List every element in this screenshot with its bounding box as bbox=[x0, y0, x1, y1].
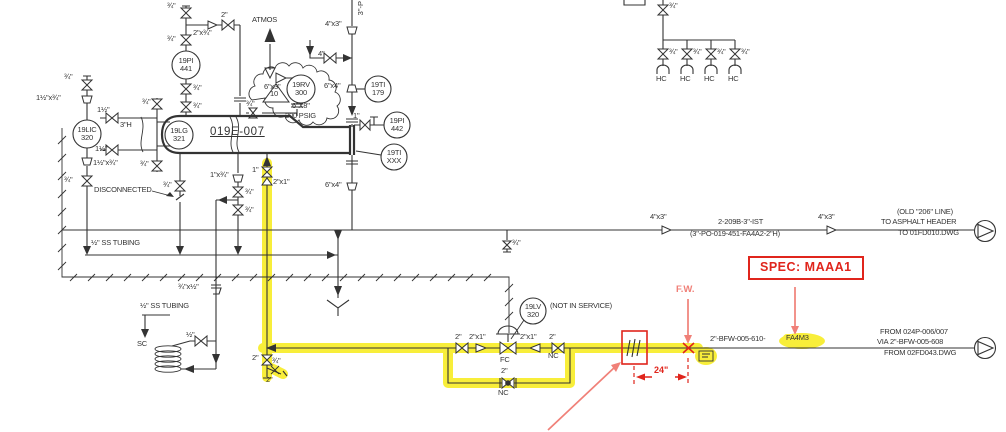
size-1-pi442: 1" bbox=[353, 112, 359, 120]
hc-4: HC bbox=[728, 75, 738, 83]
inst-19pi-442: 19PI 442 bbox=[390, 117, 405, 133]
size-2x1-lv-dn: 2"x1" bbox=[520, 333, 536, 341]
size-3-4-bridle-bot: ¾" bbox=[140, 160, 149, 168]
size-1half-top: 1½" bbox=[97, 106, 110, 114]
reducer-6x4-bot bbox=[347, 183, 357, 190]
hc-2: HC bbox=[680, 75, 690, 83]
size-4x3-ist-2: 4"x3" bbox=[818, 213, 834, 221]
inst-19ti-179: 19TI 179 bbox=[371, 81, 385, 97]
fw-arrow-head bbox=[684, 335, 692, 344]
atmos-arrow bbox=[265, 28, 276, 42]
size-6x4-top: 6"x4" bbox=[324, 82, 340, 90]
diagonal-arrow-head bbox=[611, 362, 621, 372]
fc-control-valve: FC bbox=[500, 356, 510, 364]
reducer-6x4-top bbox=[347, 85, 357, 92]
size-2-drain: 2" bbox=[252, 354, 258, 362]
vessel-tag: 019E-007 bbox=[210, 126, 265, 138]
bottoms-outlet-line bbox=[346, 155, 358, 230]
drain-stack-arrow bbox=[234, 246, 242, 255]
from-02fd043: FROM 02FD043.DWG bbox=[884, 349, 956, 357]
piping bbox=[58, 0, 996, 388]
reducer-4x3-2 bbox=[827, 226, 836, 234]
tixxx-leader bbox=[356, 151, 381, 155]
4in-valve bbox=[324, 53, 336, 63]
size-2x1-lv-up: 2"x1" bbox=[469, 333, 485, 341]
disconnected-valve bbox=[175, 181, 185, 191]
nc-block-valve: NC bbox=[548, 352, 558, 360]
bfw-line-number: 2"-BFW-005-610- bbox=[710, 335, 765, 343]
size-3-4-pi441-2: ¾" bbox=[193, 102, 202, 110]
from-024p: FROM 024P-006/007 bbox=[880, 328, 948, 336]
sc-outlet-arrow bbox=[184, 365, 194, 373]
size-2-top: 2" bbox=[221, 11, 227, 19]
atmos-label: ATMOS bbox=[252, 16, 277, 24]
vent-2in-valve bbox=[222, 20, 234, 30]
size-3-4-drain: ¾" bbox=[272, 357, 281, 365]
sample-cooler-sc: SC bbox=[137, 340, 147, 348]
spec-callout: SPEC: MAAA1 bbox=[748, 256, 864, 280]
flow-arrow-down-2 bbox=[334, 286, 342, 296]
disconnected-arrow bbox=[176, 246, 184, 255]
size-3-4-ist-drain: ¾" bbox=[512, 239, 521, 247]
highlighted-bfw-path bbox=[263, 163, 825, 383]
rv-size: 6"X8" bbox=[292, 102, 310, 110]
vessel-internal-3h: 3"H bbox=[120, 121, 132, 129]
size-1x3-4: 1"x¾" bbox=[210, 171, 229, 179]
sc-downcomer bbox=[211, 200, 221, 369]
size-3-4x1-2: ¾"x½" bbox=[178, 283, 199, 291]
inst-19ti-xxx: 19TI XXX bbox=[387, 149, 401, 165]
diagonal-arrow-line bbox=[548, 366, 616, 430]
size-3-4-hc-3: ¾" bbox=[717, 48, 726, 56]
hc-3: HC bbox=[704, 75, 714, 83]
sc-coil bbox=[155, 346, 181, 372]
inst-19lic-320: 19LIC 320 bbox=[77, 126, 96, 142]
lic-top-valve bbox=[82, 80, 92, 90]
fw-note: F.W. bbox=[676, 285, 694, 295]
pid-drawing: ¾"2"2"x¾"¾"ATMOS4"x3"3"-P4"¾"¾"6"x3"¾"6"… bbox=[0, 0, 1006, 432]
not-in-service-note: (NOT IN SERVICE) bbox=[550, 302, 612, 310]
reducer-4x3-1 bbox=[662, 226, 671, 234]
size-2-lv-up: 2" bbox=[455, 333, 461, 341]
dim-arrow-left bbox=[636, 374, 645, 381]
size-3-4-rv-drain: ¾" bbox=[246, 100, 255, 108]
relief-valve-19rv bbox=[265, 68, 286, 83]
dim-24in: 24" bbox=[654, 366, 668, 376]
size-2x3-4: 2"x¾" bbox=[193, 29, 212, 37]
top-edge-box-fragment bbox=[624, 0, 645, 5]
vessel-shell bbox=[180, 116, 354, 155]
sc-downcomer-arrow bbox=[212, 354, 220, 364]
size-2x1-bfw-inlet: 2"x1" bbox=[273, 178, 289, 186]
ss-tubing-note-2: ½" SS TUBING bbox=[140, 302, 189, 310]
blind-flange-stub bbox=[234, 25, 246, 116]
ss-tubing-note-1: ½" SS TUBING bbox=[91, 239, 140, 247]
size-3-4-drainstack-1: ¾" bbox=[245, 188, 254, 196]
old-206-line-note: (OLD "206" LINE) bbox=[897, 208, 953, 216]
size-3-4-hc-4: ¾" bbox=[741, 48, 750, 56]
size-3-4-lic-bot: ¾" bbox=[64, 176, 73, 184]
sc-branch-arrow bbox=[218, 196, 227, 204]
size-3-4-hc-2: ¾" bbox=[693, 48, 702, 56]
sc-arrow bbox=[141, 329, 149, 338]
lic-bot-valve bbox=[82, 176, 92, 186]
size-2-drain-2: 2" bbox=[266, 376, 272, 384]
size-6x4-bot: 6"x4" bbox=[325, 181, 341, 189]
ss-tubing-arrow-right bbox=[327, 251, 336, 259]
via-bfw-608: VIA 2"-BFW-005-608 bbox=[877, 338, 943, 346]
hc-1: HC bbox=[656, 75, 666, 83]
spec-break-symbol bbox=[627, 339, 640, 357]
inst-19rv-300: 19RV 300 bbox=[292, 81, 310, 97]
size-3-4-hc-1: ¾" bbox=[669, 48, 678, 56]
4in-arrow-down bbox=[306, 46, 314, 56]
line-3in-vertical: 3"-P bbox=[357, 1, 365, 15]
size-3-4-bridle-top: ¾" bbox=[142, 98, 151, 106]
size-4x3-top: 4"x3" bbox=[325, 20, 341, 28]
open-drain-funnel bbox=[327, 300, 349, 316]
ist-line-number: 2-209B-3"-IST bbox=[718, 218, 763, 226]
disconnected-note: DISCONNECTED bbox=[94, 186, 152, 194]
size-2-lv-dn: 2" bbox=[549, 333, 555, 341]
size-3-4-hc-top: ¾" bbox=[669, 2, 678, 10]
size-1-2-sc: ½" bbox=[186, 331, 195, 339]
to-01fd010: TO 01FD010.DWG bbox=[898, 229, 959, 237]
lv-actuator bbox=[496, 326, 520, 342]
size-3-4-disc: ¾" bbox=[163, 181, 172, 189]
pi442-valve bbox=[360, 120, 370, 130]
sc-half-valve bbox=[195, 336, 207, 346]
size-2-bypass: 2" bbox=[501, 367, 507, 375]
size-1-bfw-inlet: 1" bbox=[252, 166, 258, 174]
disconnected-leader-arrow bbox=[166, 192, 174, 197]
inst-19lg-321: 19LG 321 bbox=[170, 127, 188, 143]
lic-bot-reducer bbox=[82, 158, 92, 165]
drain-stack-reducer bbox=[233, 175, 243, 182]
size-1halfx3-4-bot: 1½"x¾" bbox=[93, 159, 118, 167]
size-3-4-vent-top: ¾" bbox=[167, 2, 176, 10]
size-3-4-drainstack-2: ¾" bbox=[245, 206, 254, 214]
boundary-hatch-ticks bbox=[58, 136, 513, 320]
disconnected-line bbox=[176, 153, 184, 248]
lic-top-reducer bbox=[82, 96, 92, 103]
inst-19lv-320: 19LV 320 bbox=[525, 303, 541, 319]
lic-drain-arrow bbox=[83, 246, 91, 255]
to-asphalt-header: TO ASPHALT HEADER bbox=[881, 218, 956, 226]
size-3-4-vent-bot: ¾" bbox=[167, 35, 176, 43]
rv-rating: 200 PSIG bbox=[285, 112, 316, 120]
reducer-4x3-top bbox=[347, 27, 357, 34]
rev-triangle-10: 10 bbox=[270, 90, 278, 98]
hose-connection-symbols bbox=[657, 65, 741, 74]
size-4: 4" bbox=[318, 50, 324, 58]
size-1halfx3-4-top: 1½"x¾" bbox=[36, 94, 61, 102]
bypass-valve-closed-dot bbox=[505, 380, 511, 386]
bfw-spec-fa4m3: FA4M3 bbox=[783, 334, 812, 342]
size-1half-bot: 1½" bbox=[95, 145, 108, 153]
size-4x3-ist-1: 4"x3" bbox=[650, 213, 666, 221]
inst-19pi-441: 19PI 441 bbox=[179, 57, 194, 73]
sc-connections bbox=[172, 341, 216, 369]
nc-bypass-valve: NC bbox=[498, 389, 508, 397]
ist-line-old-number: (3"-PO-019-451-FA4A2-2"H) bbox=[690, 230, 780, 238]
flow-arrow-down-1 bbox=[334, 230, 342, 240]
highlight-flag bbox=[695, 347, 717, 365]
header-drain-valve bbox=[503, 230, 511, 252]
size-3-4-pi441-1: ¾" bbox=[193, 84, 202, 92]
dim-arrow-right bbox=[678, 374, 687, 381]
4in-arrow-right bbox=[343, 54, 352, 62]
size-3-4-lic-top: ¾" bbox=[64, 73, 73, 81]
